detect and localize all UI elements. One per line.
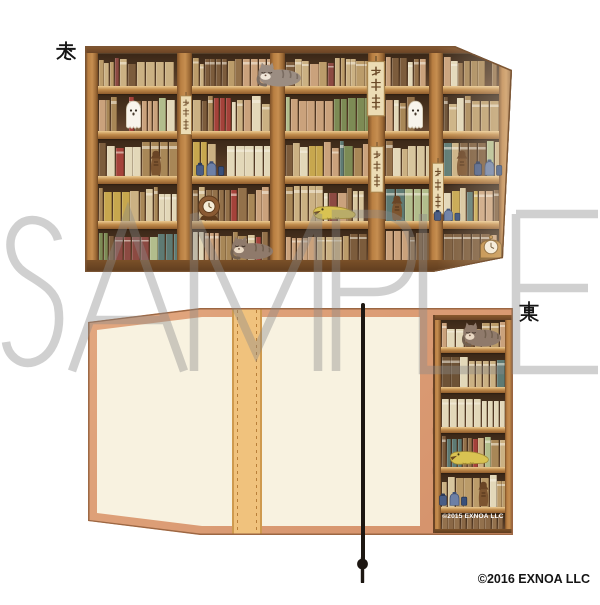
- book-spine: [417, 146, 425, 176]
- book-spine: [414, 189, 421, 221]
- book-spine: [450, 399, 457, 427]
- book-spine: [458, 399, 465, 427]
- book-spine: [193, 58, 199, 86]
- book-spine: [359, 234, 368, 260]
- book-spine: [200, 64, 204, 86]
- book-spine: [99, 188, 103, 221]
- book-spine: [146, 62, 155, 86]
- book-spine: [351, 59, 355, 86]
- tsuchinoko-icon: [311, 204, 357, 221]
- book-spine: [125, 147, 133, 176]
- book-spine: [227, 146, 236, 177]
- book-spine: [334, 237, 342, 260]
- back-cover: ©2015 EXNOA LLC: [88, 308, 513, 535]
- book-spine: [357, 98, 365, 131]
- book-spine: [133, 147, 141, 176]
- book-spine: [243, 59, 250, 86]
- clock-icon: [195, 194, 223, 221]
- book-spine: [255, 146, 264, 177]
- book-spine: [128, 64, 136, 86]
- book-spine: [137, 62, 146, 86]
- copyright-text: ©2016 EXNOA LLC: [478, 572, 590, 586]
- book-spine: [237, 100, 244, 131]
- book-spine: [442, 399, 449, 427]
- jars-icon: [438, 489, 468, 506]
- book-spine: [110, 62, 114, 86]
- book-spine: [316, 146, 323, 176]
- book-spine: [483, 361, 490, 387]
- book-spine: [402, 231, 409, 260]
- book-spine: [303, 238, 308, 260]
- tsuchinoko-icon: [448, 449, 490, 466]
- book-spine: [299, 101, 307, 131]
- book-spine: [335, 58, 340, 86]
- book-spine: [405, 189, 412, 221]
- book-spine: [202, 101, 207, 131]
- book-spine: [474, 399, 481, 427]
- book-spine: [326, 237, 334, 260]
- book-spine: [482, 401, 487, 427]
- book-spine: [354, 148, 362, 176]
- book-spine: [99, 233, 103, 260]
- book-spine: [262, 104, 271, 131]
- book-spine: [286, 187, 293, 221]
- book-spine: [316, 101, 324, 131]
- shelf-pillar: [505, 315, 513, 533]
- stitch-line: [237, 310, 238, 533]
- book-spine: [215, 233, 219, 261]
- book-spine: [99, 60, 104, 86]
- book-spine: [324, 142, 332, 176]
- book-spine: [245, 146, 254, 177]
- page: { "product": { "front_label": "表", "back…: [0, 0, 600, 600]
- book-spine: [469, 361, 476, 387]
- book-spine: [210, 59, 215, 86]
- stitch-line: [256, 310, 257, 533]
- book-spine: [341, 99, 347, 131]
- ghost-icon: [407, 100, 424, 131]
- book-spine: [344, 146, 353, 176]
- book-spine: [447, 329, 455, 347]
- book-spine: [286, 145, 293, 176]
- book-spine: [193, 232, 198, 260]
- book-spine: [308, 237, 316, 260]
- book-spine: [343, 236, 349, 260]
- book-spine: [205, 233, 209, 261]
- book-spine: [156, 62, 165, 86]
- book-spine: [422, 189, 429, 221]
- book-spine: [460, 357, 467, 387]
- book-spine: [225, 190, 231, 221]
- flap-fold-highlight: [437, 46, 512, 272]
- book-spine: [193, 100, 201, 131]
- book-spine: [490, 475, 497, 507]
- book-spine: [153, 101, 158, 131]
- book-spine: [319, 62, 327, 86]
- jars-icon: [195, 158, 225, 176]
- book-spine: [262, 187, 269, 221]
- book-spine: [116, 148, 125, 176]
- shelf-cornice: [433, 315, 513, 320]
- book-spine: [111, 97, 117, 131]
- book-spine: [165, 194, 171, 222]
- shelf-base: [433, 529, 513, 533]
- book-spine: [252, 96, 261, 131]
- back-label: [518, 301, 540, 323]
- book-spine: [346, 59, 350, 86]
- book-spine: [392, 58, 399, 86]
- book-spine: [140, 192, 145, 221]
- book-spine: [400, 58, 407, 86]
- book-spine: [236, 146, 245, 177]
- book-spine: [115, 58, 119, 86]
- book-spine: [302, 61, 309, 87]
- book-spine: [214, 98, 219, 131]
- book-spine: [109, 236, 115, 260]
- book-spine: [205, 59, 210, 86]
- shelf-pillar: [177, 46, 192, 272]
- book-spine: [442, 323, 447, 347]
- shelf-board: [433, 427, 513, 433]
- book-spine: [328, 63, 335, 86]
- book-spine: [159, 98, 167, 131]
- book-spine: [248, 194, 256, 221]
- book-spine: [244, 100, 251, 131]
- book-spine: [232, 102, 236, 131]
- book-spine: [394, 231, 401, 260]
- book-spine: [340, 141, 344, 176]
- book-spine: [104, 233, 108, 260]
- figurine-icon: [390, 195, 404, 221]
- book-spine: [208, 96, 213, 131]
- book-spine: [307, 101, 315, 131]
- book-spine: [300, 147, 308, 176]
- bookmark-knot-icon: [356, 557, 369, 583]
- book-spine: [154, 187, 159, 221]
- book-spine: [442, 357, 451, 387]
- bookmark-string: [361, 303, 365, 561]
- book-spine: [130, 191, 139, 221]
- book-spine: [222, 59, 227, 86]
- figurine-icon: [477, 481, 490, 507]
- book-spine: [488, 401, 493, 427]
- artwork-copyright: ©2015 EXNOA LLC: [433, 513, 513, 520]
- book-spine: [317, 237, 325, 260]
- book-spine: [231, 190, 237, 221]
- bookshelf-row: [433, 393, 513, 427]
- book-spine: [115, 237, 123, 261]
- book-spine: [325, 101, 333, 131]
- front-label: [55, 41, 77, 63]
- book-spine: [301, 186, 308, 221]
- book-spine: [166, 234, 173, 260]
- book-spine: [309, 146, 316, 176]
- book-spine: [334, 99, 340, 131]
- book-spine: [341, 58, 345, 86]
- shelf-board: [433, 467, 513, 473]
- book-spine: [99, 100, 106, 131]
- book-spine: [293, 143, 299, 177]
- book-spine: [408, 146, 416, 176]
- book-spine: [348, 98, 356, 131]
- book-spine: [158, 234, 165, 260]
- book-spine: [297, 238, 302, 260]
- book-spine: [491, 440, 499, 467]
- book-spine: [226, 98, 231, 131]
- book-spine: [199, 232, 204, 260]
- book-spine: [400, 103, 407, 131]
- book-spine: [104, 192, 112, 221]
- book-spine: [386, 231, 393, 260]
- book-spine: [416, 233, 423, 260]
- book-spine: [124, 237, 132, 261]
- book-spine: [386, 100, 393, 131]
- shelf-pillar: [85, 46, 98, 272]
- book-spine: [410, 237, 415, 260]
- back-flap-art: ©2015 EXNOA LLC: [433, 315, 513, 533]
- book-spine: [451, 357, 460, 387]
- book-spine: [414, 59, 419, 86]
- book-spine: [420, 59, 426, 86]
- book-spine: [408, 62, 414, 86]
- sleeping-cat-icon: [251, 61, 303, 87]
- hanging-tag-icon: [179, 92, 193, 136]
- sleeping-cat-icon: [225, 235, 275, 260]
- book-spine: [99, 143, 106, 176]
- book-spine: [394, 100, 399, 131]
- book-spine: [210, 233, 214, 261]
- book-spine: [310, 64, 319, 86]
- figurine-icon: [149, 150, 163, 176]
- book-spine: [286, 237, 291, 261]
- book-spine: [393, 148, 401, 176]
- hanging-tag-icon: [365, 56, 387, 118]
- book-spine: [350, 234, 359, 260]
- book-spine: [220, 98, 225, 131]
- book-spine: [104, 63, 109, 86]
- book-spine: [141, 237, 149, 261]
- book-spine: [107, 146, 115, 176]
- sleeping-cat-icon: [457, 321, 503, 347]
- book-spine: [497, 360, 505, 387]
- book-spine: [150, 237, 158, 260]
- book-spine: [238, 188, 247, 221]
- book-spine: [332, 148, 339, 176]
- book-spine: [402, 149, 408, 176]
- book-spine: [106, 100, 110, 131]
- hanging-tag-icon: [369, 142, 385, 194]
- book-spine: [113, 192, 121, 221]
- spine-stitch-strip: [232, 308, 262, 535]
- book-spine: [291, 99, 298, 131]
- book-spine: [256, 190, 262, 221]
- book-spine: [132, 237, 140, 261]
- book-spine: [359, 191, 364, 221]
- book-spine: [466, 399, 473, 427]
- book-spine: [356, 61, 364, 86]
- book-spine: [216, 59, 221, 86]
- book-spine: [148, 101, 153, 131]
- front-cover: [85, 46, 512, 272]
- book-spine: [386, 141, 393, 176]
- ghost-icon: [125, 100, 142, 131]
- book-spine: [165, 62, 174, 86]
- shelf-board: [433, 347, 513, 353]
- book-spine: [120, 59, 128, 86]
- book-spine: [159, 194, 165, 222]
- book-spine: [122, 192, 130, 221]
- book-spine: [142, 101, 147, 131]
- book-spine: [490, 361, 497, 387]
- book-spine: [292, 238, 297, 260]
- book-spine: [476, 361, 483, 387]
- book-spine: [494, 401, 499, 427]
- book-spine: [167, 100, 175, 131]
- bookshelf-row: [433, 353, 513, 387]
- book-spine: [294, 186, 301, 221]
- book-spine: [235, 59, 242, 87]
- book-spine: [286, 97, 290, 131]
- book-spine: [442, 436, 446, 467]
- book-spine: [228, 61, 235, 86]
- book-spine: [497, 481, 501, 507]
- book-spine: [146, 189, 153, 221]
- shelf-board: [433, 387, 513, 393]
- flap-fold-seam: [433, 315, 435, 533]
